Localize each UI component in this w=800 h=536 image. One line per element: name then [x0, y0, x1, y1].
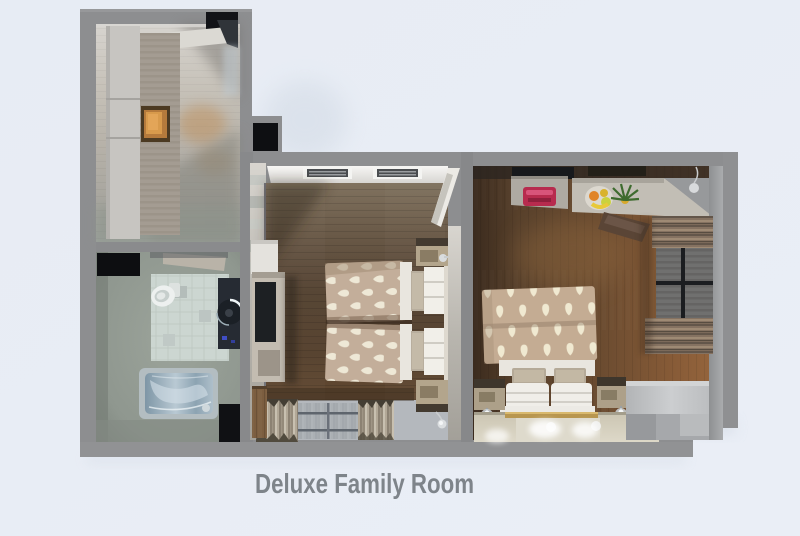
- svg-text:Deluxe Family Room: Deluxe Family Room: [255, 468, 474, 499]
